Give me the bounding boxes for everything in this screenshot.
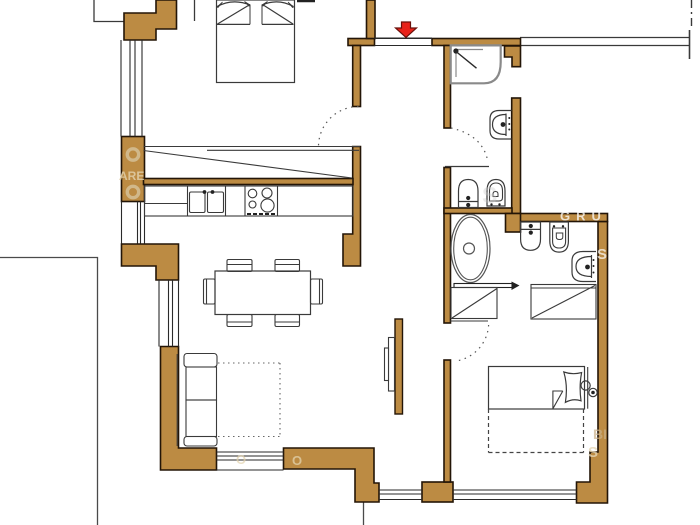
svg-text:O: O [236,452,246,467]
svg-text:S: S [588,444,598,461]
svg-text:GRU: GRU [560,209,607,224]
svg-text:ARE: ARE [119,169,144,183]
svg-text:BI: BI [593,426,607,442]
svg-text:S: S [482,182,497,208]
svg-text:S: S [597,246,607,263]
svg-text:O: O [292,453,302,468]
